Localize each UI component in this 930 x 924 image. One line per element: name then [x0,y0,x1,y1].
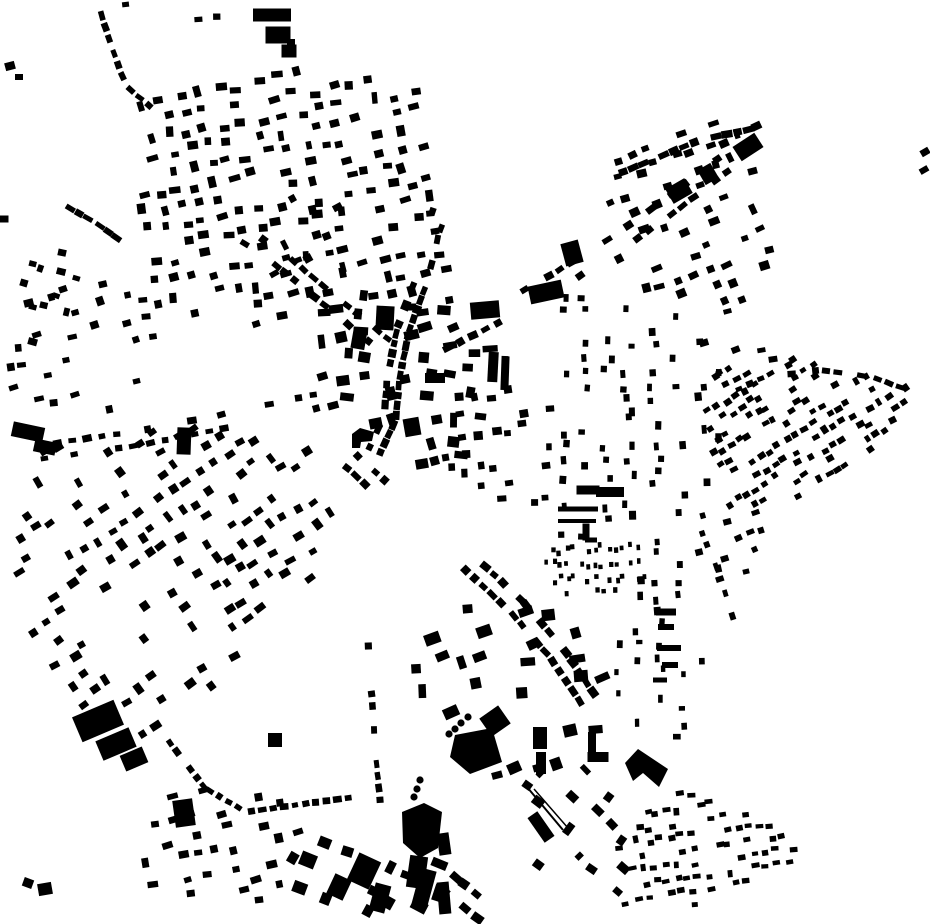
round-building [410,793,417,800]
landmark-buildings-layer [0,9,930,915]
round-building [451,725,458,732]
building-footprint-map [0,0,930,924]
round-building [464,713,471,720]
round-building [457,719,464,726]
round-building [413,785,420,792]
page: { "map": { "width": 930, "height": 924, … [0,0,930,924]
map-stage [0,0,930,924]
round-building [445,730,452,737]
landmark-building [625,749,668,787]
district-buildings-layer [6,2,910,919]
round-building [416,776,423,783]
landmark-building [402,803,442,858]
